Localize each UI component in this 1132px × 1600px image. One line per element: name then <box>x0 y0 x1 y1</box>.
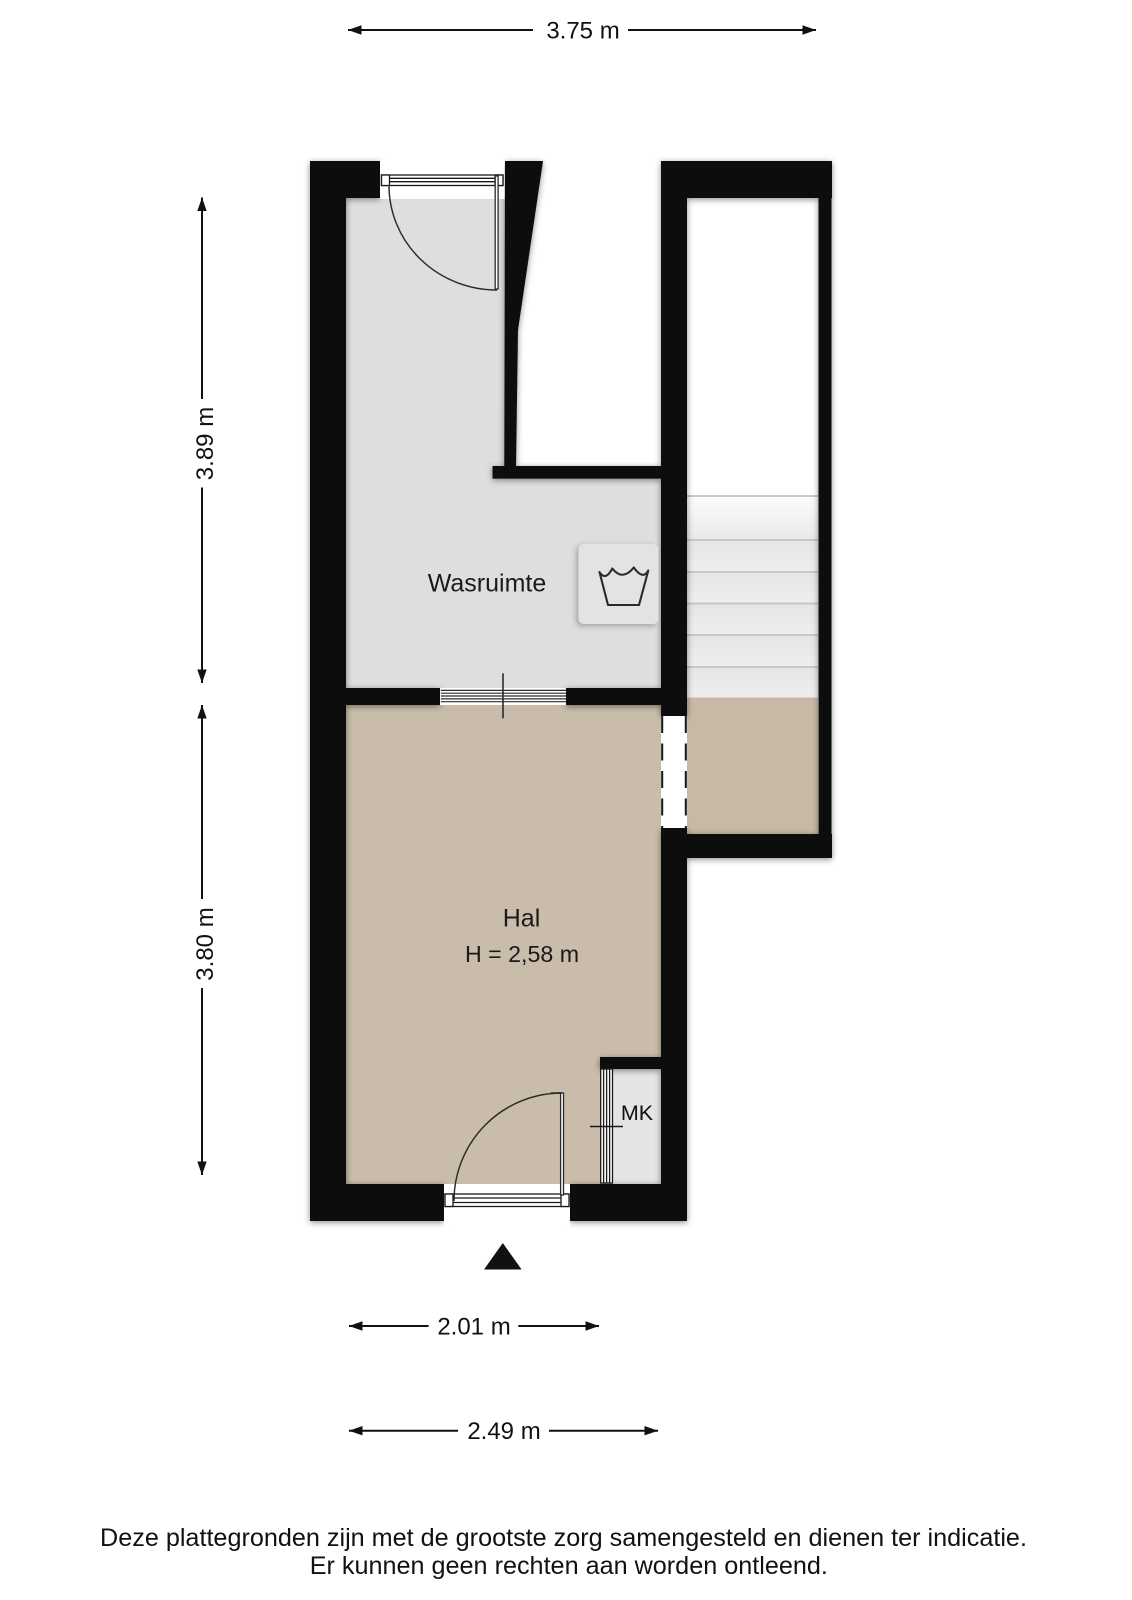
svg-text:Hal: Hal <box>503 905 541 933</box>
svg-text:H = 2,58 m: H = 2,58 m <box>465 941 579 967</box>
svg-text:2.49 m: 2.49 m <box>467 1418 540 1445</box>
svg-text:3.89 m: 3.89 m <box>192 407 219 480</box>
svg-text:Wasruimte: Wasruimte <box>428 570 547 598</box>
svg-text:2.01 m: 2.01 m <box>437 1313 510 1340</box>
svg-text:Deze plattegronden zijn met de: Deze plattegronden zijn met de grootste … <box>100 1524 1027 1552</box>
svg-text:3.80 m: 3.80 m <box>192 907 219 980</box>
svg-text:3.75 m: 3.75 m <box>546 17 619 44</box>
svg-text:MK: MK <box>621 1101 654 1125</box>
svg-text:Er kunnen geen rechten aan wor: Er kunnen geen rechten aan worden ontlee… <box>310 1552 828 1580</box>
